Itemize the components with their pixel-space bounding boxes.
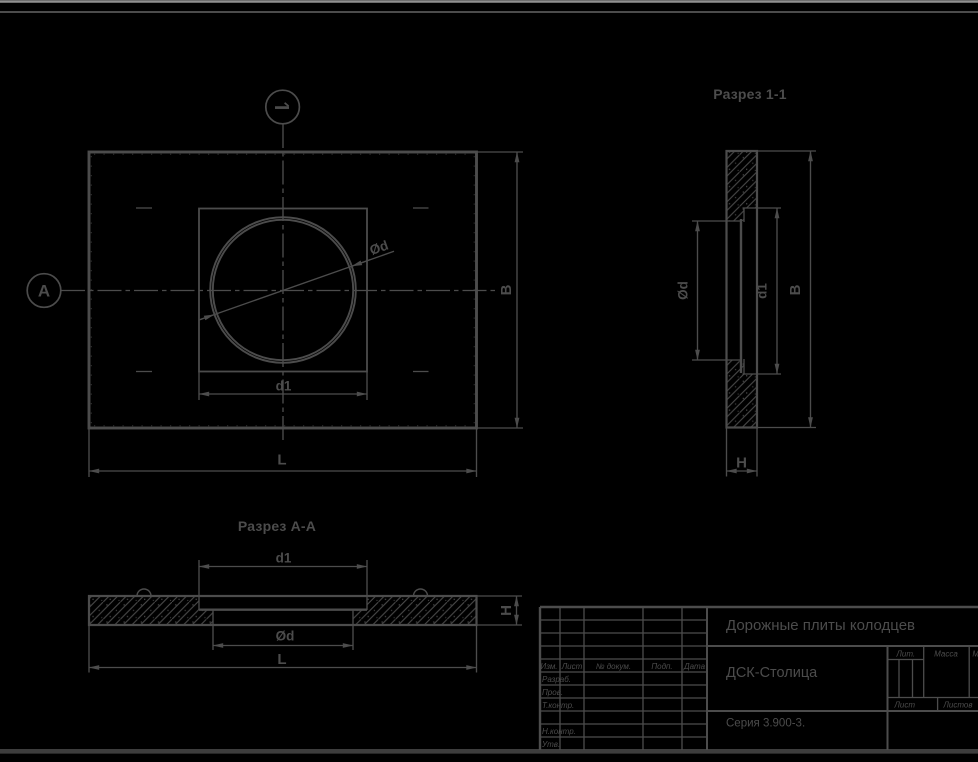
- svg-text:Масса: Масса: [934, 650, 958, 659]
- svg-text:Лист: Лист: [561, 662, 583, 671]
- svg-text:Подп.: Подп.: [651, 662, 672, 671]
- svg-text:Дорожные плиты колодцев: Дорожные плиты колодцев: [726, 617, 915, 634]
- svg-text:Разрез 1-1: Разрез 1-1: [713, 86, 787, 102]
- svg-text:Ød: Ød: [276, 629, 295, 644]
- svg-text:Лит.: Лит.: [895, 650, 915, 659]
- svg-text:d1: d1: [755, 283, 770, 299]
- svg-text:Пров.: Пров.: [542, 688, 563, 697]
- svg-text:d1: d1: [276, 551, 292, 566]
- svg-text:№ докум.: № докум.: [596, 662, 631, 671]
- svg-text:Масштаб: Масштаб: [972, 650, 978, 659]
- svg-text:ДСК-Столица: ДСК-Столица: [726, 665, 818, 681]
- svg-text:Разрез А-А: Разрез А-А: [238, 518, 316, 534]
- svg-text:Н.контр.: Н.контр.: [542, 727, 576, 736]
- svg-text:Т.контр.: Т.контр.: [542, 701, 574, 710]
- svg-text:B: B: [787, 284, 804, 295]
- svg-text:H: H: [498, 605, 515, 616]
- svg-text:Серия 3.900-3.: Серия 3.900-3.: [726, 718, 805, 730]
- svg-text:L: L: [277, 651, 286, 668]
- svg-text:Листов: Листов: [942, 701, 972, 710]
- svg-text:Утв.: Утв.: [541, 740, 560, 749]
- svg-text:А: А: [38, 282, 50, 301]
- svg-text:L: L: [277, 452, 286, 469]
- svg-text:Изм.: Изм.: [540, 662, 557, 671]
- svg-text:Дата: Дата: [683, 662, 706, 671]
- svg-text:Ød: Ød: [676, 281, 691, 300]
- svg-text:H: H: [736, 455, 747, 472]
- svg-text:Лист: Лист: [893, 701, 915, 710]
- svg-text:Разраб.: Разраб.: [542, 675, 571, 684]
- svg-text:d1: d1: [276, 379, 292, 394]
- svg-text:B: B: [498, 284, 515, 295]
